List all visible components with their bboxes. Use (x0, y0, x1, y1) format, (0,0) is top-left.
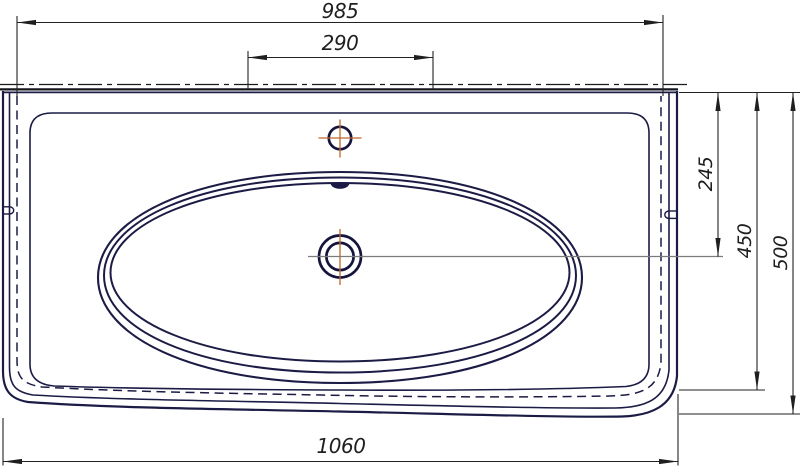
dim-overall-depth-label: 500 (770, 235, 792, 270)
arrowhead (754, 93, 759, 112)
overflow-notch (331, 183, 350, 189)
arrowhead (715, 238, 720, 257)
arrowhead (754, 372, 759, 391)
arrowhead (715, 93, 720, 112)
arrowhead (248, 55, 267, 60)
dim-top-edge-width-label: 985 (322, 0, 359, 23)
arrowhead (414, 55, 433, 60)
dim-basin-depth-label: 450 (734, 223, 756, 258)
dim-basin-depth: 450 (679, 93, 765, 391)
arrowhead (17, 20, 36, 25)
arrowhead (644, 20, 663, 25)
drawing-canvas: 985 290 1060 245 (0, 0, 800, 466)
arrowhead (790, 396, 795, 415)
arrowhead (790, 93, 795, 112)
dim-back-edge-to-drain: 245 (695, 93, 721, 257)
right-mount-notch (665, 211, 677, 218)
dimension-layer: 985 290 1060 245 (3, 0, 800, 466)
dim-overall-width: 1060 (3, 394, 678, 466)
arrowhead (659, 459, 678, 464)
dim-overall-width-label: 1060 (317, 434, 366, 458)
dim-tap-hole-spacing: 290 (248, 31, 433, 90)
dim-tap-hole-spacing-label: 290 (322, 31, 359, 55)
washbasin-drawing: 985 290 1060 245 (0, 0, 800, 466)
arrowhead (3, 459, 22, 464)
left-mount-notch (3, 207, 14, 214)
washbasin-body (0, 85, 690, 417)
dim-back-edge-to-drain-label: 245 (695, 156, 717, 191)
